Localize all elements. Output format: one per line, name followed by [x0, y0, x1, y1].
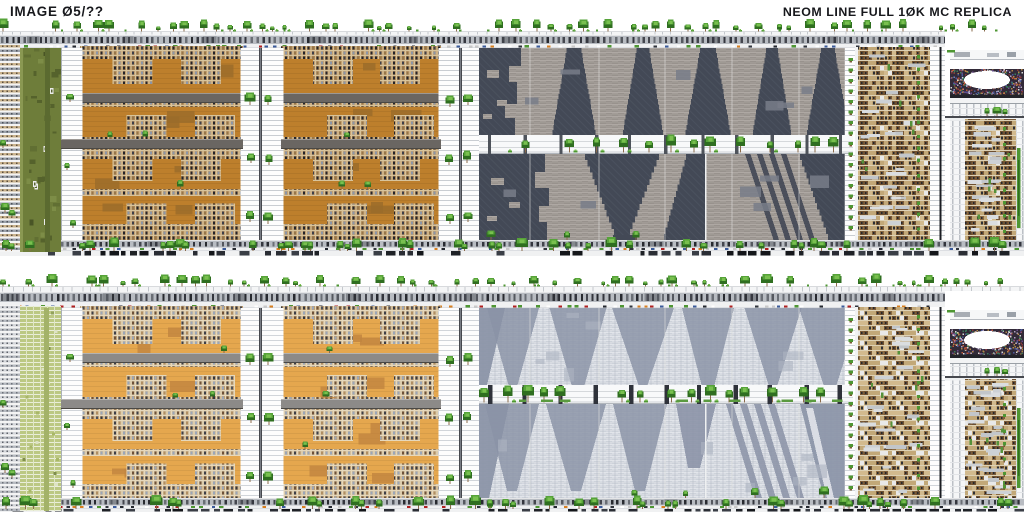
svg-text:IMAGE Ø5/??: IMAGE Ø5/?? — [10, 4, 104, 19]
svg-text:NEOM LINE FULL 1ØK MC REPLICA: NEOM LINE FULL 1ØK MC REPLICA — [783, 5, 1012, 19]
